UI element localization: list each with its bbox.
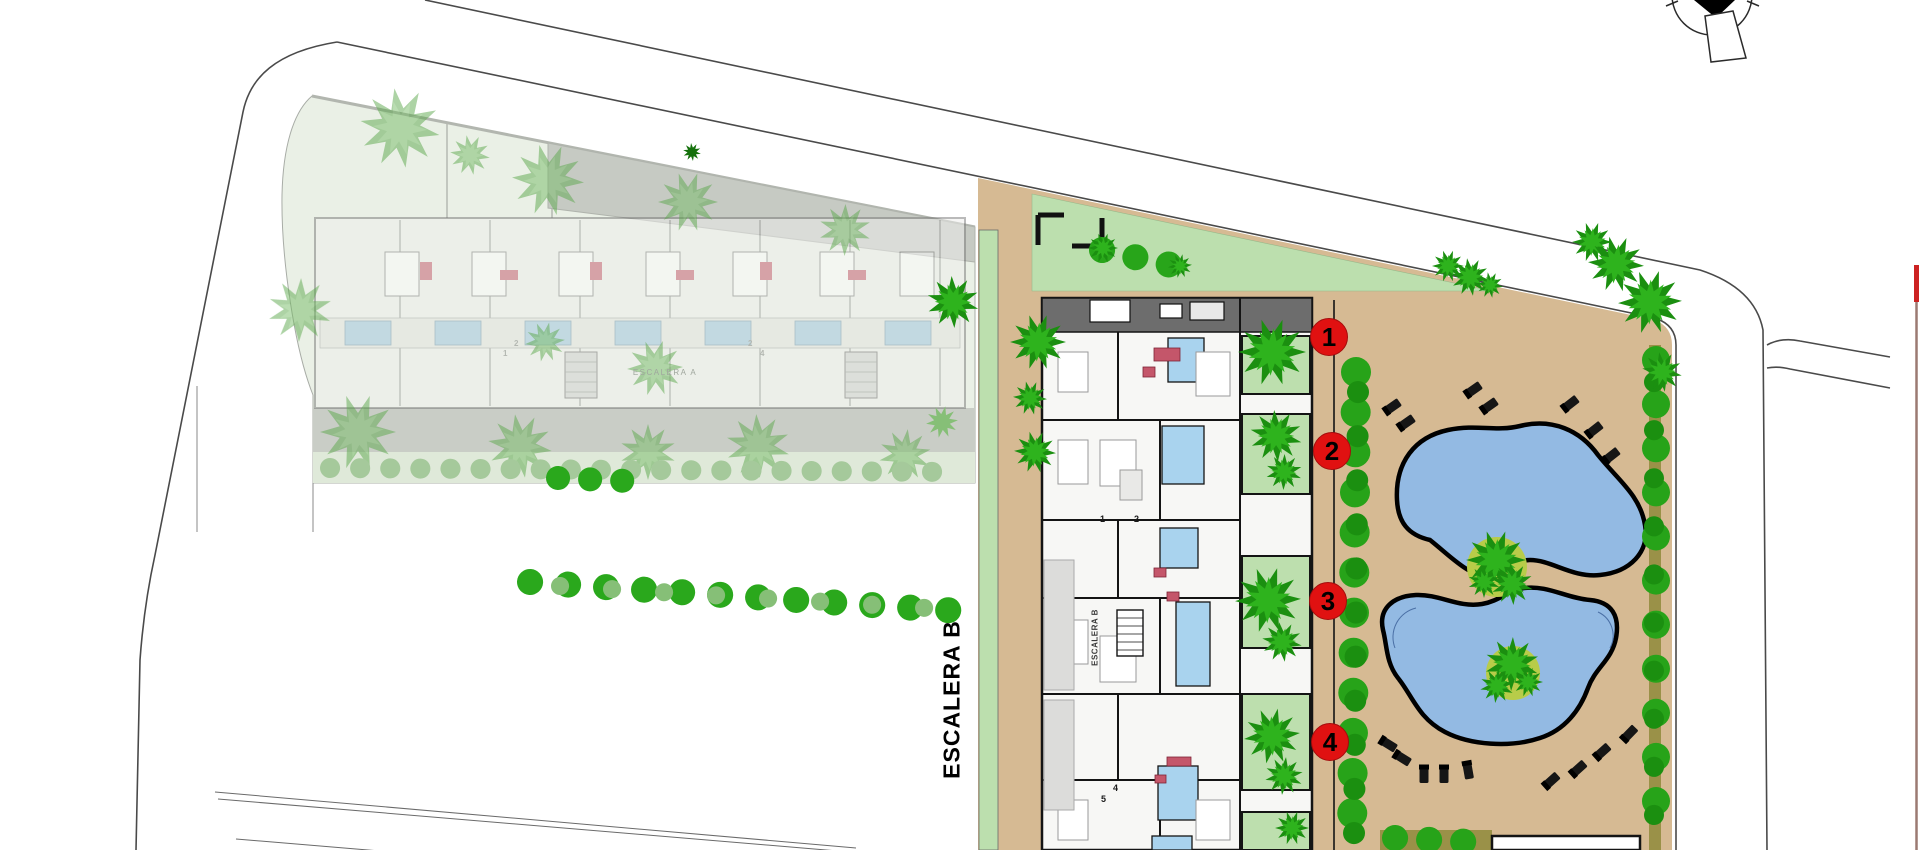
plan-number: 5 — [1101, 794, 1106, 804]
escalera-b-street-label: ESCALERA B — [939, 590, 966, 810]
north-arrow-icon — [1666, 0, 1759, 62]
plan-number: 4 — [1113, 783, 1118, 793]
street-tree-icon — [681, 142, 702, 162]
unit-marker-1[interactable]: 1 — [1310, 318, 1348, 356]
plan-number: 2 — [1134, 514, 1139, 524]
plan-number: 1 — [1100, 514, 1105, 524]
unit-marker-2[interactable]: 2 — [1313, 432, 1351, 470]
pool-house-roof — [1492, 836, 1640, 850]
plan-number-faded: 1 — [503, 349, 507, 358]
building-b-stair-core — [1117, 610, 1143, 656]
unit-marker-4[interactable]: 4 — [1311, 723, 1349, 761]
sidewalk-sliver-lines — [215, 792, 856, 850]
east-street-south-curb — [1767, 367, 1890, 388]
plan-number-faded: 2 — [748, 339, 752, 348]
site-plan-canvas: ESCALERA B ESCALERA B ESCALERA A 1 2 4 5… — [0, 0, 1920, 850]
plan-number-faded: 2 — [514, 339, 518, 348]
plan-number-faded: 4 — [760, 349, 764, 358]
access-path-lines — [197, 386, 313, 532]
east-street-north-curb — [1767, 340, 1890, 357]
zone-b-west-lawn-strip — [979, 230, 998, 850]
unit-marker-3[interactable]: 3 — [1309, 582, 1347, 620]
zone-a-faded-plot — [260, 84, 975, 490]
building-a-core-label: ESCALERA A — [610, 368, 720, 377]
building-b-core-label: ESCALERA B — [1091, 593, 1100, 683]
